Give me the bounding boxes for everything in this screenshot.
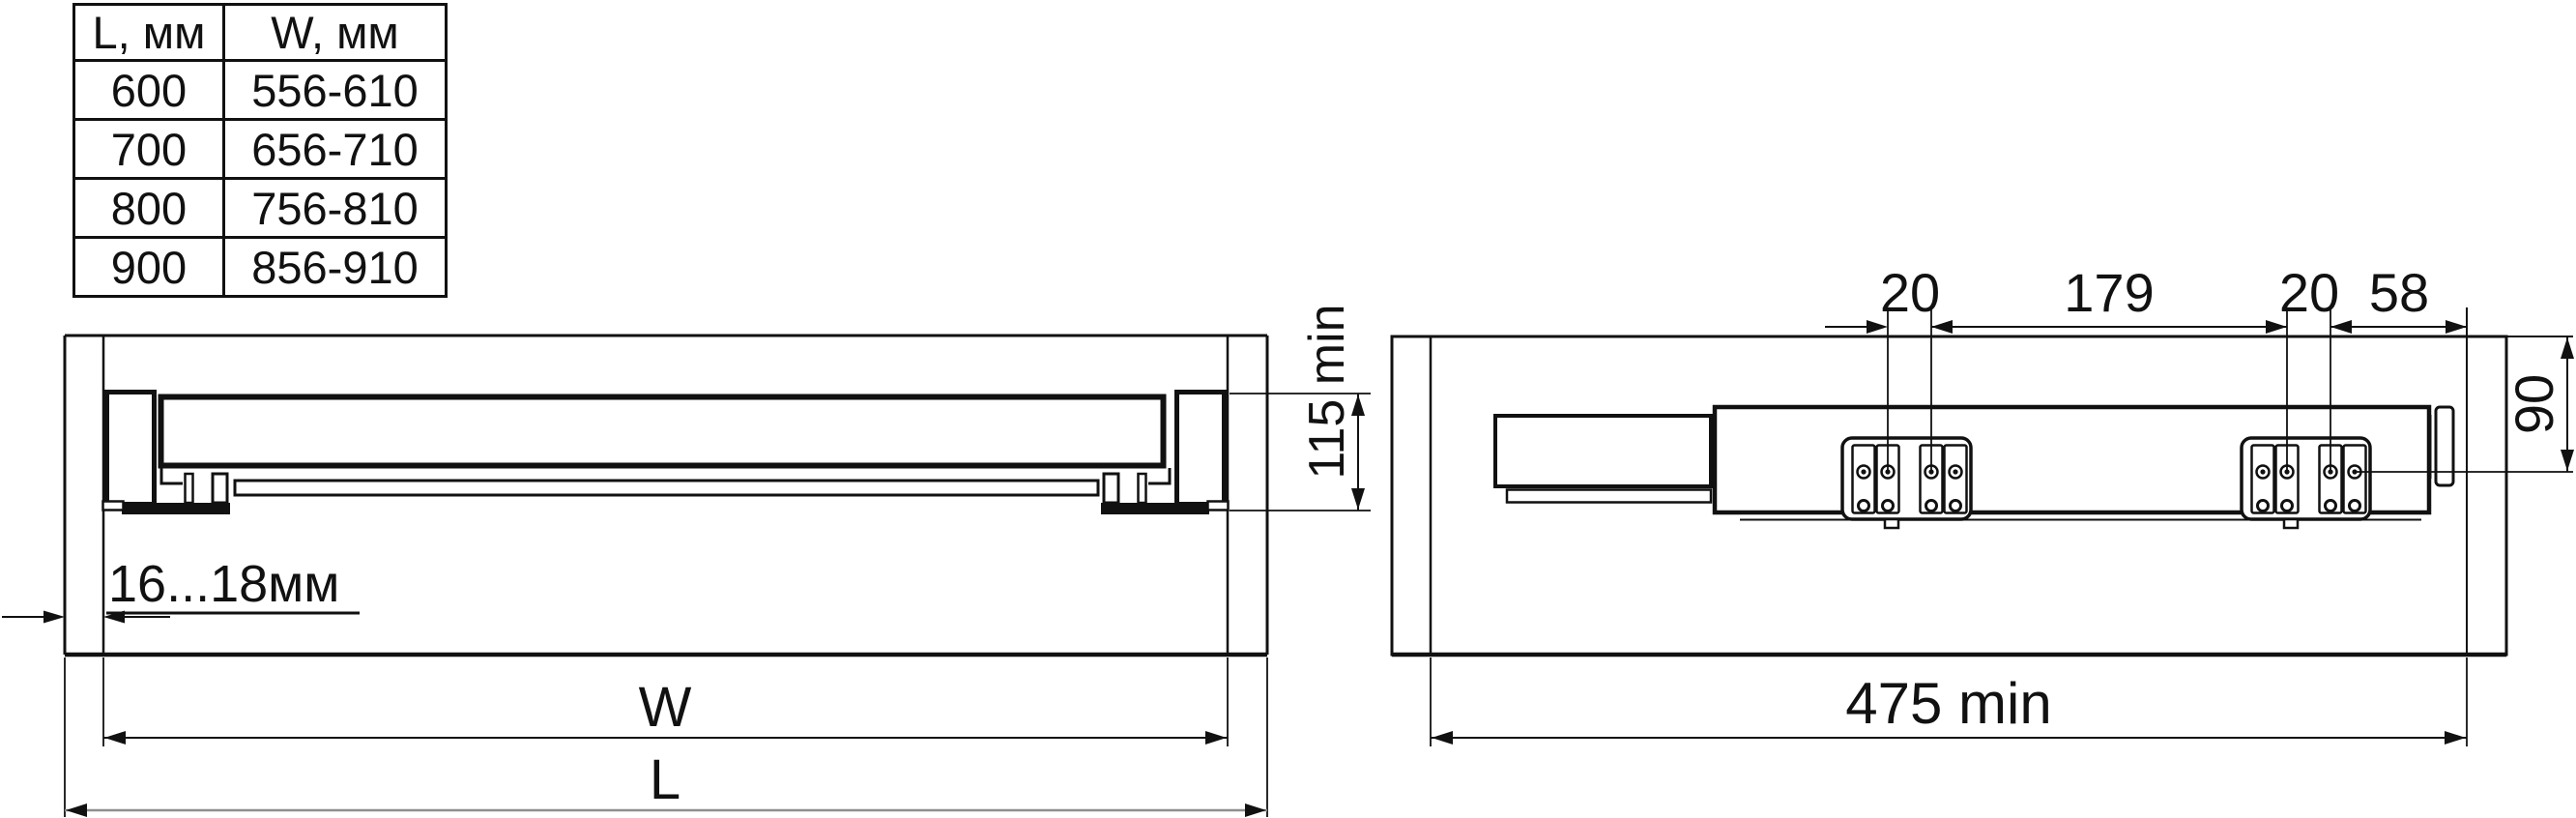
screw-hole-icon: [1951, 501, 1961, 511]
mounting-bracket-left: [1842, 438, 1971, 528]
dim-475-min-label: 475 min: [1845, 671, 2051, 736]
dim-179-label: 179: [2064, 262, 2154, 323]
dim-panel-thickness: 16...18мм: [2, 555, 360, 624]
mounting-bracket-right: [2242, 438, 2370, 528]
slide-bracket-right-front: [1177, 393, 1225, 505]
dim-inner-width-w: W: [103, 657, 1228, 746]
arrowhead: [1205, 731, 1227, 745]
slide-foot-left: [122, 503, 230, 514]
dim-height-115-label: 115 min: [1299, 304, 1355, 479]
front-view-drawing: 16...18мм 115 min W: [2, 304, 1371, 817]
dim-58-label: 58: [2369, 262, 2429, 323]
arrowhead: [104, 731, 126, 745]
slide-bracket-left-front: [107, 393, 155, 505]
screw-hole-icon: [1926, 501, 1937, 511]
side-view-drawing: 20 179 20 58 90 475 min: [1392, 262, 2574, 746]
dim-panel-thickness-label: 16...18мм: [108, 555, 339, 613]
arrowhead: [1432, 731, 1453, 745]
drawer-rail-front: [161, 397, 1164, 466]
dim-l-label: L: [650, 748, 680, 811]
dim-90-label: 90: [2504, 374, 2564, 434]
arrowhead: [66, 803, 87, 817]
arrowhead: [2561, 450, 2574, 471]
arrowhead: [2561, 337, 2574, 359]
dim-depth-475-min: 475 min: [1431, 657, 2467, 746]
back-rail-side: [1495, 416, 1711, 486]
arrowhead: [1351, 488, 1365, 510]
drawings-canvas: 16...18мм 115 min W: [0, 0, 2576, 818]
front-cap-plate: [2436, 407, 2453, 485]
dim-w-label: W: [639, 676, 692, 739]
lower-rail-front: [235, 481, 1098, 495]
slide-foot-right: [1101, 503, 1209, 514]
screw-hole-icon: [1859, 501, 1869, 511]
arrowhead: [2446, 320, 2467, 334]
drawer-slide-front: [103, 393, 1229, 515]
technical-drawing-page: L, мм W, мм 600 556-610 700 656-710 800 …: [0, 0, 2576, 818]
arrowhead: [1245, 803, 1266, 817]
arrowhead: [43, 611, 65, 624]
dim-20-right-label: 20: [2279, 262, 2339, 323]
arrowhead: [2445, 731, 2466, 745]
dim-20-left-label: 20: [1880, 262, 1940, 323]
screw-hole-icon: [1883, 501, 1894, 511]
